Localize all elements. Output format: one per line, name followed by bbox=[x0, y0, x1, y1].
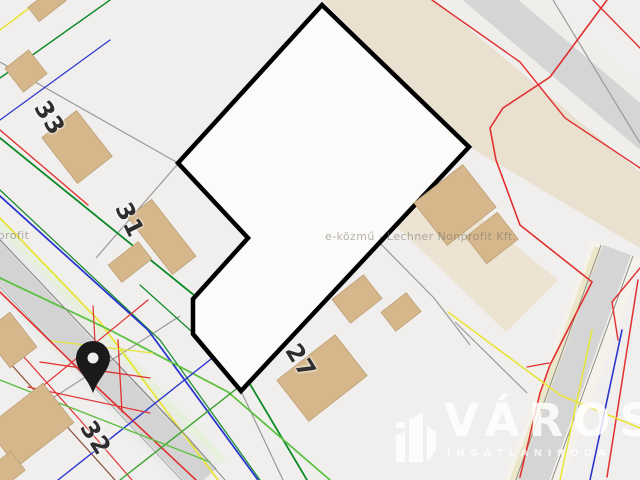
utility-stub-red-road-c bbox=[527, 363, 549, 367]
pin-hole bbox=[88, 353, 99, 364]
watermark-left-fragment: e-közmű - Lechner Nonprofit Kft. bbox=[0, 229, 34, 242]
utility-line-red-tr-3 bbox=[593, 0, 640, 48]
map-viewport[interactable]: 33 31 27 32 e-közmű - Lechner Nonprofit … bbox=[0, 0, 640, 480]
watermark-center: e-közmű - Lechner Nonprofit Kft. bbox=[325, 230, 517, 243]
icon-bar-3 bbox=[427, 426, 436, 462]
logo-brand-text: VÁROS bbox=[444, 398, 640, 443]
watermark-left-clip: e-közmű - Lechner Nonprofit Kft. bbox=[0, 229, 34, 246]
logo-subtitle-text: INGATLANIRODA bbox=[447, 448, 611, 459]
brand-logo: VÁROS INGATLANIRODA bbox=[396, 398, 640, 476]
building bbox=[28, 0, 66, 22]
city-buildings-icon bbox=[396, 402, 442, 466]
building-outbuilding-2 bbox=[381, 293, 421, 332]
building-31a bbox=[108, 242, 151, 283]
boundary-line bbox=[455, 322, 527, 393]
icon-bar-2 bbox=[409, 412, 423, 462]
icon-block bbox=[396, 422, 405, 428]
icon-bar-1 bbox=[396, 431, 405, 462]
